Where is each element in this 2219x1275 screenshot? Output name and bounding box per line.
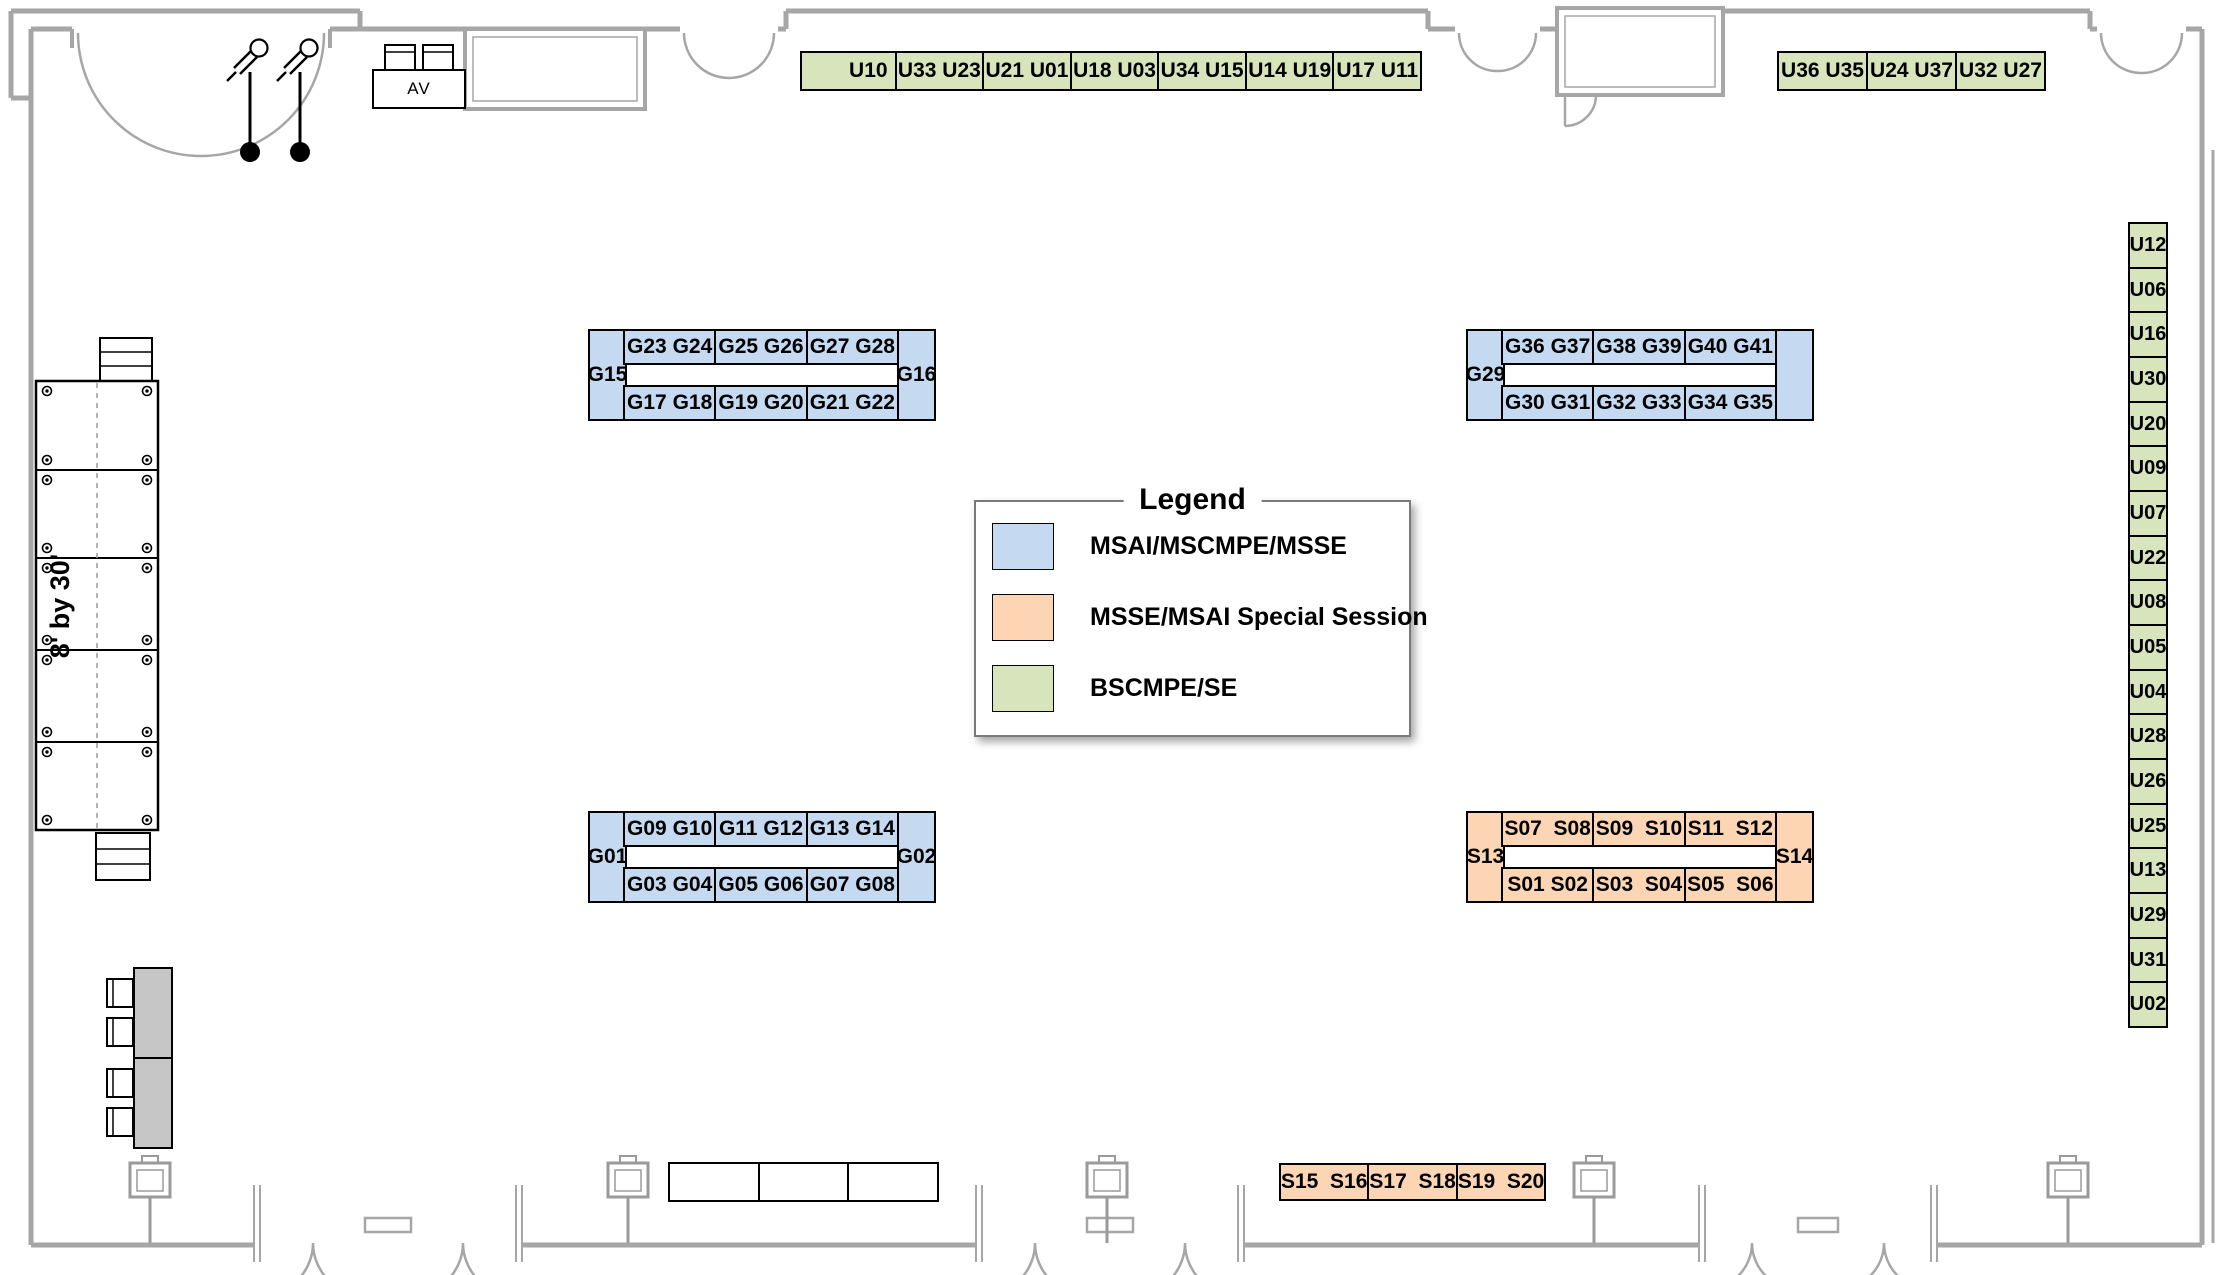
- booth-cell: U18 U03: [1070, 51, 1160, 91]
- booth-island-g-east: G29 G36 G37 G38 G39 G40 G41 G30 G31 G32 …: [1466, 329, 1814, 421]
- booth-cell: U20: [2128, 401, 2168, 448]
- booth-cell: U08: [2128, 579, 2168, 626]
- legend-swatch-orange: [992, 594, 1054, 641]
- booth-cell: G21 G22: [806, 385, 899, 421]
- booth-island-g-north: G15 G23 G24 G25 G26 G27 G28 G17 G18 G19 …: [588, 329, 936, 421]
- booth-cell: U34 U15: [1157, 51, 1247, 91]
- booth-cell: U33 U23: [895, 51, 985, 91]
- booth-endcap: G16: [897, 329, 936, 421]
- booth-cell: U24 U37: [1866, 51, 1957, 91]
- booth-island-g-south: G01 G09 G10 G11 G12 G13 G14 G03 G04 G05 …: [588, 811, 936, 903]
- booth-cell: G36 G37: [1501, 329, 1594, 365]
- booth-cell: G05 G06: [714, 867, 807, 903]
- booth-cell: U29: [2128, 892, 2168, 939]
- booth-island-s: S13 S07 S08 S09 S10 S11 S12 S01 S02 S03 …: [1466, 811, 1814, 903]
- booth-cell: G40 G41: [1684, 329, 1777, 365]
- legend-item-label: MSSE/MSAI Special Session: [1090, 603, 1428, 632]
- booth-cell: G30 G31: [1501, 385, 1594, 421]
- booth-cell: G27 G28: [806, 329, 899, 365]
- booth-cell: U22: [2128, 535, 2168, 582]
- booth-endcap: S13: [1466, 811, 1505, 903]
- booth-cell: G11 G12: [714, 811, 807, 847]
- booth-cell: U05: [2128, 624, 2168, 671]
- booth-cell: S15 S16: [1279, 1163, 1369, 1201]
- booth-cell: U32 U27: [1955, 51, 2046, 91]
- booth-bar-top-right: U36 U35 U24 U37 U32 U27: [1777, 51, 2046, 91]
- booth-cell: U16: [2128, 311, 2168, 358]
- chair-icon: [107, 1108, 133, 1136]
- legend-item: MSAI/MSCMPE/MSSE: [992, 523, 1347, 570]
- legend-swatch-green: [992, 665, 1054, 712]
- legend-swatch-blue: [992, 523, 1054, 570]
- booth-cell: G07 G08: [806, 867, 899, 903]
- booth-cell: G13 G14: [806, 811, 899, 847]
- legend: Legend MSAI/MSCMPE/MSSE MSSE/MSAI Specia…: [974, 500, 1411, 737]
- booth-cell: U04: [2128, 669, 2168, 716]
- booth-cell: S07 S08: [1501, 811, 1594, 847]
- legend-title: Legend: [1123, 483, 1262, 517]
- stage-size-label: 8' by 30': [4, 550, 116, 662]
- booth-endcap: G29: [1466, 329, 1505, 421]
- booth-bar-bottom-wall: S15 S16 S17 S18 S19 S20: [1279, 1163, 1541, 1201]
- chair-icon: [107, 1018, 133, 1046]
- booth-cell: S03 S04: [1592, 867, 1685, 903]
- chair-icon: [107, 1069, 133, 1097]
- booth-cell: U25: [2128, 803, 2168, 850]
- legend-item: MSSE/MSAI Special Session: [992, 594, 1428, 641]
- booth-cell: U17 U11: [1332, 51, 1422, 91]
- booth-cell: G34 G35: [1684, 385, 1777, 421]
- booth-endcap: G02: [897, 811, 936, 903]
- floor-plan: U10 U33 U23 U21 U01 U18 U03 U34 U15 U14 …: [0, 0, 2219, 1275]
- booth-bar-top-wall: U10 U33 U23 U21 U01 U18 U03 U34 U15 U14 …: [800, 51, 1422, 91]
- booth-cell: G38 G39: [1592, 329, 1685, 365]
- work-tables: [107, 968, 172, 1148]
- booth-cell: U06: [2128, 267, 2168, 314]
- booth-cell: S05 S06: [1684, 867, 1777, 903]
- booth-column-right-wall: U12 U06 U16 U30 U20 U09 U07 U22 U08 U05 …: [2128, 222, 2168, 1028]
- booth-cell: G09 G10: [623, 811, 716, 847]
- booth-cell: U10: [800, 51, 897, 91]
- booth-cell: U02: [2128, 981, 2168, 1028]
- booth-cell: U36 U35: [1777, 51, 1868, 91]
- booth-cell: U09: [2128, 445, 2168, 492]
- booth-cell: U14 U19: [1245, 51, 1335, 91]
- stage-steps-top: [100, 338, 152, 381]
- booth-cell: G32 G33: [1592, 385, 1685, 421]
- legend-item-label: MSAI/MSCMPE/MSSE: [1090, 532, 1347, 561]
- booth-cell: G03 G04: [623, 867, 716, 903]
- legend-item: BSCMPE/SE: [992, 665, 1237, 712]
- av-console-label: AV: [373, 70, 465, 108]
- legend-item-label: BSCMPE/SE: [1090, 674, 1237, 703]
- booth-cell: S17 S18: [1367, 1163, 1457, 1201]
- booth-cell: U13: [2128, 847, 2168, 894]
- booth-cell: G23 G24: [623, 329, 716, 365]
- booth-cell: U31: [2128, 937, 2168, 984]
- registration-table: [669, 1163, 938, 1201]
- booth-endcap: G01: [588, 811, 627, 903]
- booth-endcap: G15: [588, 329, 627, 421]
- booth-cell: G19 G20: [714, 385, 807, 421]
- booth-cell: S11 S12: [1684, 811, 1777, 847]
- booth-endcap: S14: [1775, 811, 1814, 903]
- booth-cell: U21 U01: [982, 51, 1072, 91]
- chair-icon: [107, 979, 133, 1007]
- booth-cell: G25 G26: [714, 329, 807, 365]
- stage-steps-bottom: [96, 833, 150, 880]
- booth-cell: S09 S10: [1592, 811, 1685, 847]
- booth-cell: G17 G18: [623, 385, 716, 421]
- booth-cell: U07: [2128, 490, 2168, 537]
- booth-cell: U30: [2128, 356, 2168, 403]
- booth-cell: U12: [2128, 222, 2168, 269]
- booth-cell: S01 S02: [1501, 867, 1594, 903]
- booth-cell: S19 S20: [1456, 1163, 1546, 1201]
- booth-cell: U26: [2128, 758, 2168, 805]
- booth-endcap: [1775, 329, 1814, 421]
- booth-cell: U28: [2128, 713, 2168, 760]
